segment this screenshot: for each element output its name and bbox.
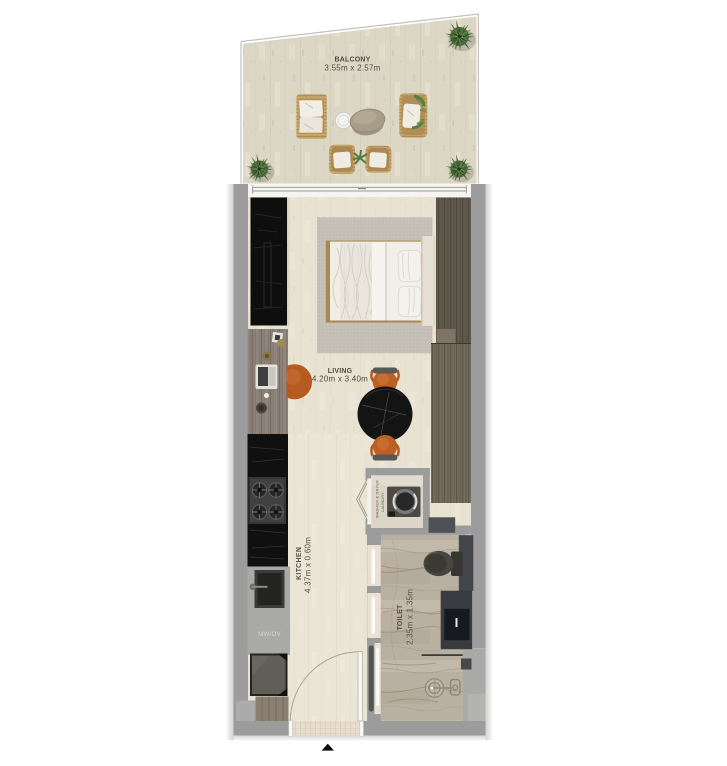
svg-text:WASHER & DRYER: WASHER & DRYER — [375, 480, 380, 518]
svg-text:BALCONY: BALCONY — [334, 57, 370, 64]
svg-text:KITCHEN: KITCHEN — [296, 547, 303, 580]
svg-text:LAUNDRY: LAUNDRY — [380, 492, 385, 512]
svg-text:MW/OV: MW/OV — [258, 631, 281, 638]
svg-text:TOILET: TOILET — [397, 604, 404, 630]
svg-text:2.35m x 1.35m: 2.35m x 1.35m — [406, 589, 415, 645]
svg-text:4.20m x 3.40m: 4.20m x 3.40m — [312, 375, 368, 384]
svg-text:4.37m x 0.60m: 4.37m x 0.60m — [304, 537, 313, 593]
svg-text:3.55m x 2.57m: 3.55m x 2.57m — [324, 64, 380, 73]
